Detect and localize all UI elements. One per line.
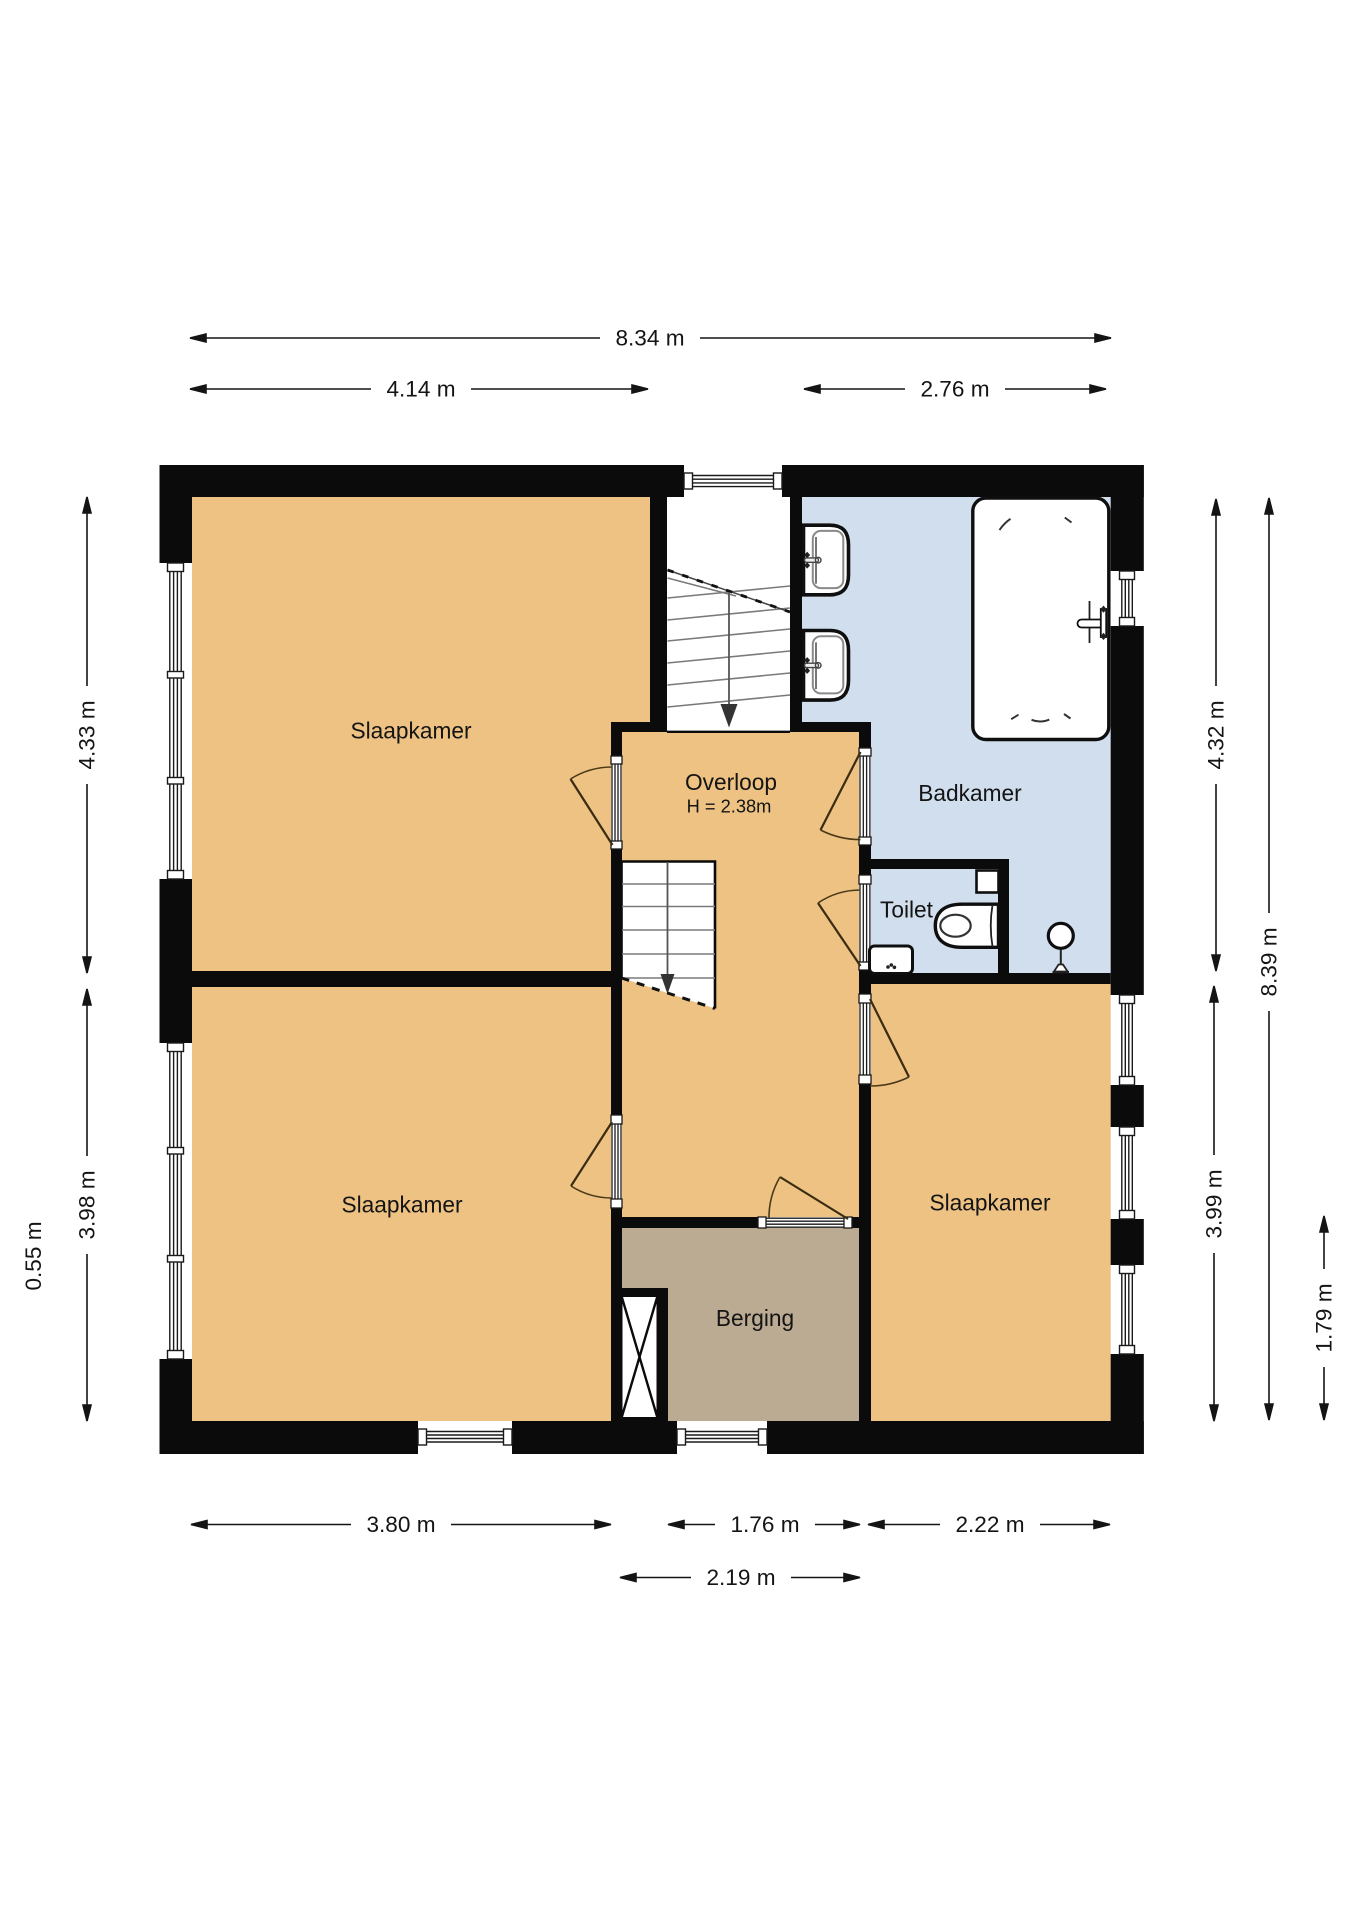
svg-text:4.32 m: 4.32 m [1204, 700, 1229, 769]
svg-text:4.33 m: 4.33 m [75, 700, 100, 769]
svg-text:Slaapkamer: Slaapkamer [350, 718, 472, 744]
svg-text:2.76 m: 2.76 m [920, 377, 989, 402]
svg-text:0.55 m: 0.55 m [21, 1221, 46, 1290]
svg-text:3.99 m: 3.99 m [1202, 1169, 1227, 1238]
svg-text:Overloop: Overloop [685, 769, 777, 795]
svg-text:8.39 m: 8.39 m [1257, 927, 1282, 996]
svg-text:3.98 m: 3.98 m [75, 1170, 100, 1239]
svg-text:3.80 m: 3.80 m [366, 1512, 435, 1537]
svg-text:H = 2.38m: H = 2.38m [687, 796, 772, 817]
svg-text:Badkamer: Badkamer [918, 780, 1022, 806]
svg-text:8.34 m: 8.34 m [615, 326, 684, 351]
svg-text:2.22 m: 2.22 m [955, 1512, 1024, 1537]
svg-text:1.79 m: 1.79 m [1312, 1283, 1337, 1352]
svg-text:Slaapkamer: Slaapkamer [929, 1190, 1051, 1216]
svg-text:1.76 m: 1.76 m [730, 1512, 799, 1537]
svg-text:4.14 m: 4.14 m [386, 377, 455, 402]
svg-text:Toilet: Toilet [880, 897, 934, 923]
svg-text:Slaapkamer: Slaapkamer [341, 1192, 463, 1218]
svg-text:Berging: Berging [716, 1305, 794, 1331]
svg-text:2.19 m: 2.19 m [706, 1565, 775, 1590]
